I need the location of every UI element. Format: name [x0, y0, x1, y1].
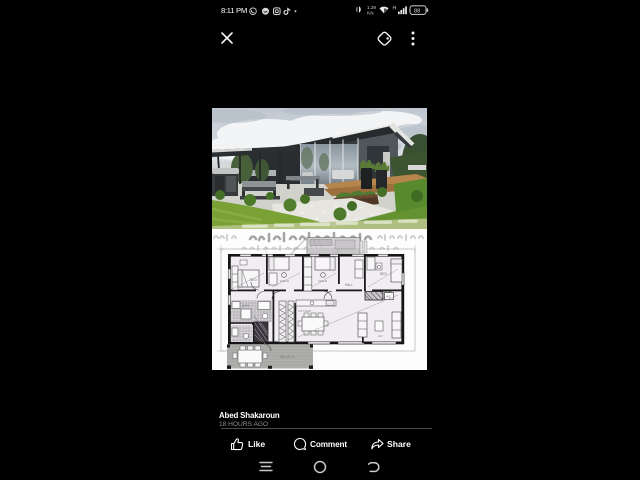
- svg-text:H: H: [393, 6, 397, 12]
- svg-text:BED: BED: [250, 278, 258, 282]
- svg-text:SB DECK: SB DECK: [280, 355, 296, 359]
- svg-text:HALL: HALL: [345, 283, 353, 287]
- svg-text:K/s: K/s: [367, 10, 374, 15]
- svg-text:KITCHEN: KITCHEN: [298, 309, 311, 313]
- svg-text:1.29: 1.29: [367, 5, 376, 10]
- svg-text:BATH: BATH: [242, 304, 249, 308]
- svg-text:BED: BED: [380, 272, 388, 276]
- svg-text:LIV: LIV: [378, 334, 383, 338]
- svg-text:88: 88: [414, 8, 420, 14]
